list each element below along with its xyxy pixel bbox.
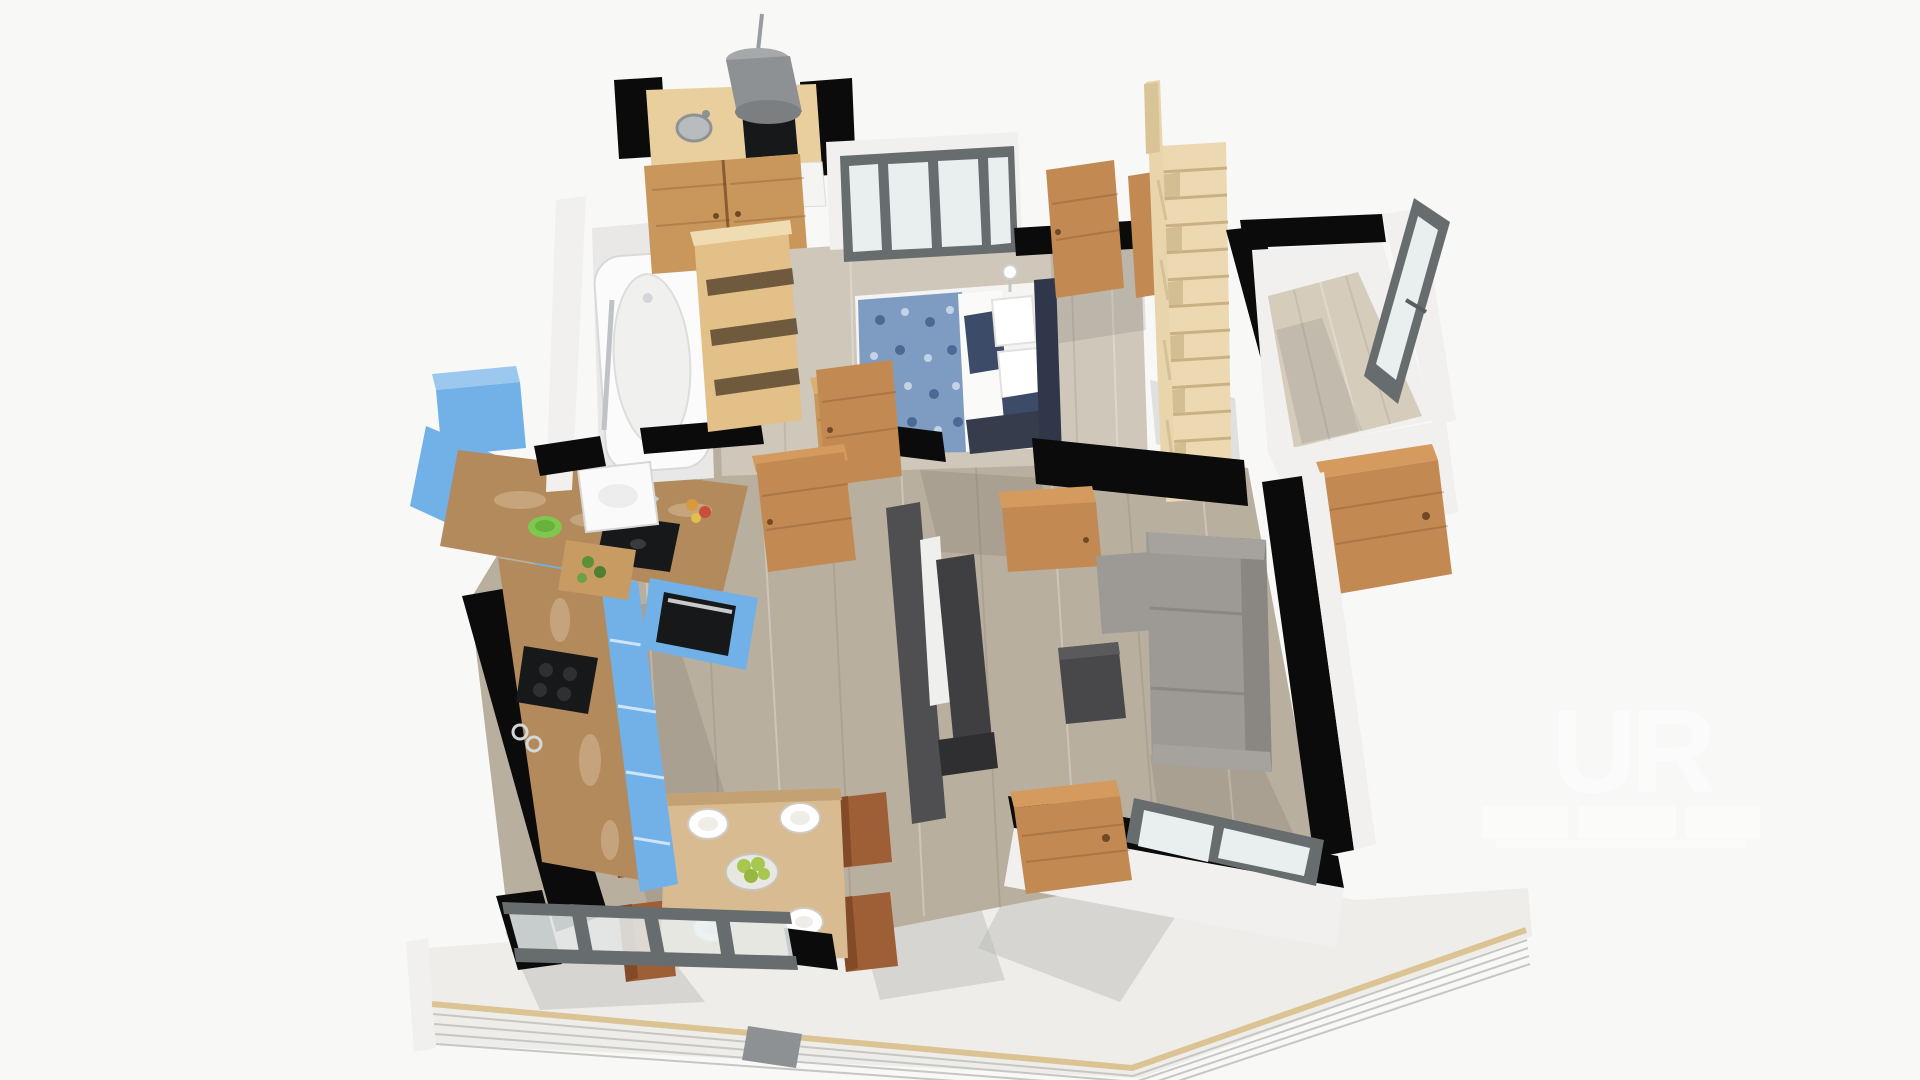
kitchen-wall-cabinet: [436, 382, 526, 456]
watermark: UR: [1482, 686, 1760, 848]
utility-faucet: [702, 110, 710, 118]
apple-bowl: [726, 854, 778, 890]
white-pillow-2: [998, 348, 1042, 398]
green-bowl-inner: [535, 520, 555, 532]
washbasin-bowl: [598, 484, 638, 508]
watermark-logo: UR: [1552, 686, 1714, 818]
white-pillow-1: [992, 296, 1036, 346]
living-bottom-door: [1010, 780, 1132, 894]
entry-top-wall: [1240, 214, 1386, 248]
floorplan-svg: UR: [0, 0, 1920, 1080]
floorplan-render: UR: [0, 0, 1920, 1080]
range-hood: [726, 14, 802, 124]
sink-drain: [630, 539, 646, 549]
induction-cooktop: [516, 646, 598, 714]
coffee-table: [1058, 642, 1126, 724]
open-shelf-unit: [690, 220, 802, 432]
watermark-subtext-illegible: [1482, 806, 1760, 848]
bedroom-window: [840, 146, 1018, 262]
living-top-door: [998, 486, 1102, 572]
utility-sink: [677, 115, 711, 141]
